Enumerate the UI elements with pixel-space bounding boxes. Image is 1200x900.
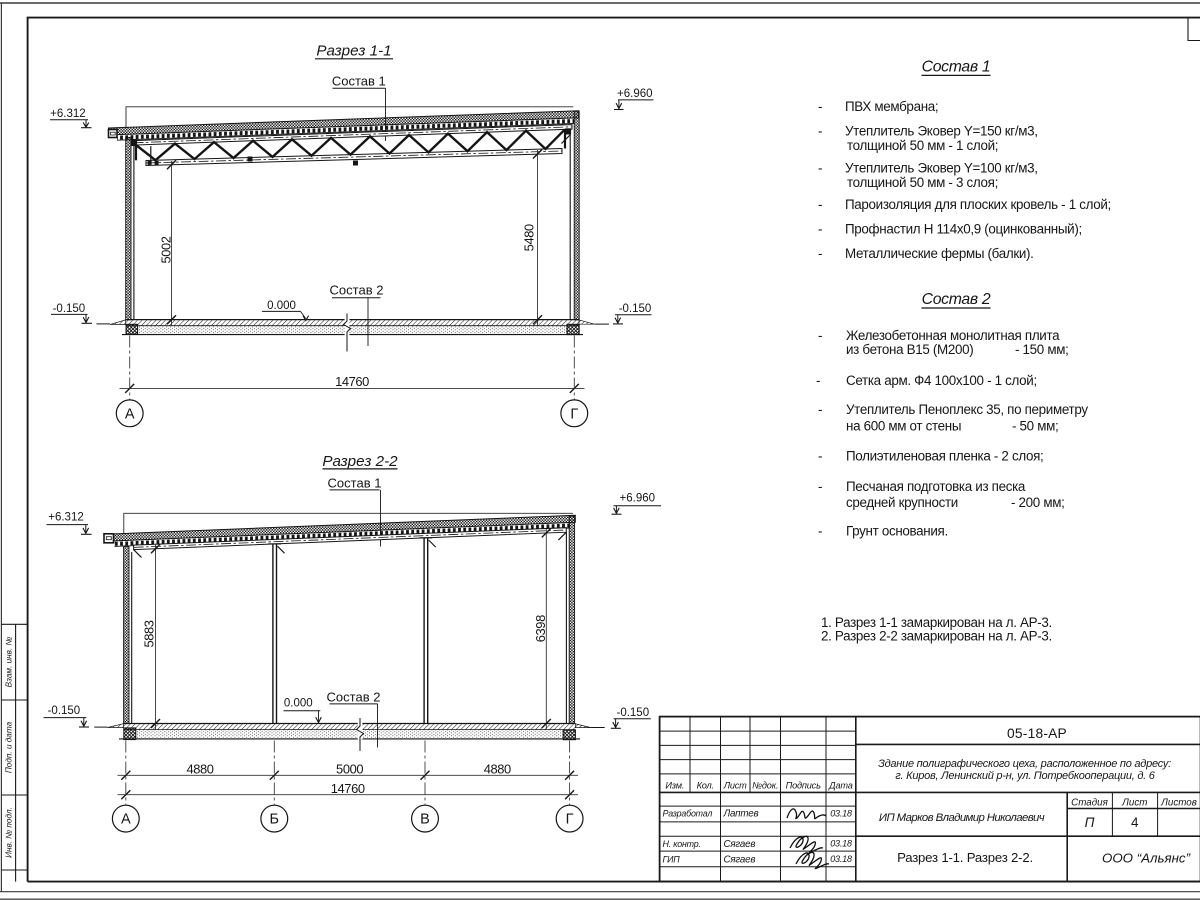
svg-text:Пароизоляция для плоских крове: Пароизоляция для плоских кровель - 1 сло… (845, 197, 1111, 212)
svg-text:Дата: Дата (828, 780, 853, 790)
svg-text:-: - (818, 402, 822, 417)
svg-text:Полиэтиленовая пленка - 2 слоя: Полиэтиленовая пленка - 2 слоя; (846, 449, 1043, 464)
svg-text:Лист: Лист (723, 780, 747, 790)
svg-text:Профнастил Н 114х0,9 (оцинкова: Профнастил Н 114х0,9 (оцинкованный); (845, 222, 1082, 237)
svg-text:-: - (818, 479, 822, 494)
svg-text:Сягаев: Сягаев (724, 854, 756, 865)
svg-text:Сягаев: Сягаев (724, 839, 756, 850)
svg-text:ООО “Альянс”: ООО “Альянс” (1102, 850, 1191, 865)
svg-text:Состав 1: Состав 1 (922, 58, 991, 75)
svg-text:Состав 1: Состав 1 (328, 476, 382, 491)
svg-text:г. Киров, Ленинский р-н, ул.: г. Киров, Ленинский р-н, ул. Потребкоопе… (895, 770, 1155, 782)
svg-text:03.18: 03.18 (830, 839, 852, 849)
svg-text:Подпись: Подпись (786, 780, 821, 790)
svg-text:- 150 мм;: - 150 мм; (1015, 342, 1069, 357)
svg-text:Песчаная подготовка из песка: Песчаная подготовка из песка (846, 479, 1026, 494)
svg-text:4: 4 (1131, 815, 1139, 830)
svg-text:Н. контр.: Н. контр. (663, 839, 701, 849)
svg-text:Инв. № подл.: Инв. № подл. (5, 807, 14, 858)
svg-text:Утеплитель Эковер Y=100 кг/м3,: Утеплитель Эковер Y=100 кг/м3, (845, 161, 1038, 176)
svg-text:-0.150: -0.150 (619, 303, 652, 315)
svg-text:толщиной 50 мм - 1 слой;: толщиной 50 мм - 1 слой; (847, 138, 998, 153)
svg-text:№док.: №док. (752, 780, 778, 790)
svg-text:- 50 мм;: - 50 мм; (1012, 419, 1058, 434)
svg-text:-: - (818, 161, 822, 176)
svg-text:Разрез 1-1. Разрез 2-2.: Разрез 1-1. Разрез 2-2. (897, 850, 1033, 865)
svg-text:-0.150: -0.150 (616, 707, 649, 719)
svg-text:средней крупности: средней крупности (846, 495, 958, 510)
svg-text:-: - (818, 197, 822, 212)
svg-text:+6.960: +6.960 (620, 492, 656, 504)
svg-text:Разработал: Разработал (663, 809, 713, 819)
svg-text:Состав 1: Состав 1 (332, 73, 386, 88)
svg-text:-0.150: -0.150 (53, 303, 86, 315)
svg-text:0.000: 0.000 (267, 300, 296, 312)
svg-text:Утеплитель Пеноплекс 35, по пе: Утеплитель Пеноплекс 35, по периметру (846, 402, 1088, 417)
svg-text:5480: 5480 (521, 224, 536, 251)
svg-text:-: - (818, 449, 822, 464)
svg-text:14760: 14760 (331, 781, 365, 796)
svg-text:Состав 2: Состав 2 (330, 283, 384, 298)
svg-text:на 600 мм от стены: на 600 мм от стены (846, 419, 961, 434)
svg-text:Лаптев: Лаптев (723, 809, 759, 820)
svg-text:0.000: 0.000 (284, 698, 313, 710)
svg-text:из бетона В15 (М200): из бетона В15 (М200) (846, 342, 973, 357)
svg-text:Сетка арм. Ф4 100х100 - 1 слой: Сетка арм. Ф4 100х100 - 1 слой; (846, 373, 1037, 388)
svg-text:+6.960: +6.960 (617, 88, 653, 100)
svg-text:6398: 6398 (533, 615, 548, 642)
svg-text:03.18: 03.18 (830, 809, 852, 819)
svg-text:Металлические фермы (балки).: Металлические фермы (балки). (845, 246, 1034, 261)
svg-text:Состав 2: Состав 2 (922, 291, 991, 308)
svg-text:Б: Б (270, 812, 280, 828)
svg-text:А: А (125, 406, 135, 422)
svg-text:Лист: Лист (1121, 797, 1147, 808)
svg-text:Подп. и дата: Подп. и дата (5, 721, 14, 773)
svg-text:-: - (818, 328, 822, 343)
svg-text:ГИП: ГИП (663, 854, 681, 864)
svg-text:Состав 2: Состав 2 (327, 689, 381, 704)
svg-text:Кол.: Кол. (697, 780, 714, 790)
svg-text:В: В (420, 812, 430, 828)
svg-text:14760: 14760 (335, 374, 369, 389)
svg-text:Г: Г (566, 812, 574, 828)
svg-text:5002: 5002 (158, 236, 173, 263)
svg-text:-: - (818, 523, 822, 538)
svg-text:4880: 4880 (484, 762, 511, 777)
svg-text:А: А (121, 812, 131, 828)
svg-text:Разрез 1-1: Разрез 1-1 (316, 43, 391, 60)
svg-text:Утеплитель Эковер Y=150 кг/м3,: Утеплитель Эковер Y=150 кг/м3, (845, 124, 1038, 139)
svg-text:Г: Г (570, 406, 578, 422)
svg-text:-0.150: -0.150 (48, 705, 81, 717)
svg-text:Железобетонная монолитная пли: Железобетонная монолитная плита (846, 328, 1060, 343)
svg-text:Разрез 2-2: Разрез 2-2 (322, 453, 398, 470)
svg-text:Стадия: Стадия (1071, 797, 1108, 808)
svg-text:+6.312: +6.312 (50, 108, 86, 120)
svg-text:2. Разрез 2-2 замаркирован на: 2. Разрез 2-2 замаркирован на л. АР-3. (821, 629, 1052, 644)
svg-text:П: П (1085, 815, 1095, 830)
svg-text:+6.312: +6.312 (48, 511, 84, 523)
svg-text:толщиной 50 мм - 3 слоя;: толщиной 50 мм - 3 слоя; (847, 175, 998, 190)
svg-text:-: - (818, 246, 822, 261)
svg-text:05-18-АР: 05-18-АР (1007, 726, 1067, 741)
svg-text:Грунт основания.: Грунт основания. (846, 523, 948, 538)
svg-text:ПВХ мембрана;: ПВХ мембрана; (845, 99, 938, 114)
svg-text:5883: 5883 (141, 620, 156, 647)
svg-text:Здание полиграфического цеха,: Здание полиграфического цеха, расположен… (878, 758, 1171, 770)
svg-text:-: - (818, 124, 822, 139)
svg-text:03.18: 03.18 (830, 854, 852, 864)
svg-text:5000: 5000 (336, 762, 363, 777)
svg-text:Листов: Листов (1160, 797, 1197, 808)
svg-text:4880: 4880 (186, 762, 213, 777)
svg-text:ИП Марков Владимир Николаевич: ИП Марков Владимир Николаевич (879, 812, 1045, 824)
svg-text:-: - (816, 373, 820, 388)
svg-text:- 200 мм;: - 200 мм; (1011, 495, 1065, 510)
svg-text:-: - (818, 222, 822, 237)
svg-text:Взам. инв. №: Взам. инв. № (5, 637, 14, 688)
svg-text:-: - (818, 99, 822, 114)
svg-text:Изм.: Изм. (665, 780, 684, 790)
